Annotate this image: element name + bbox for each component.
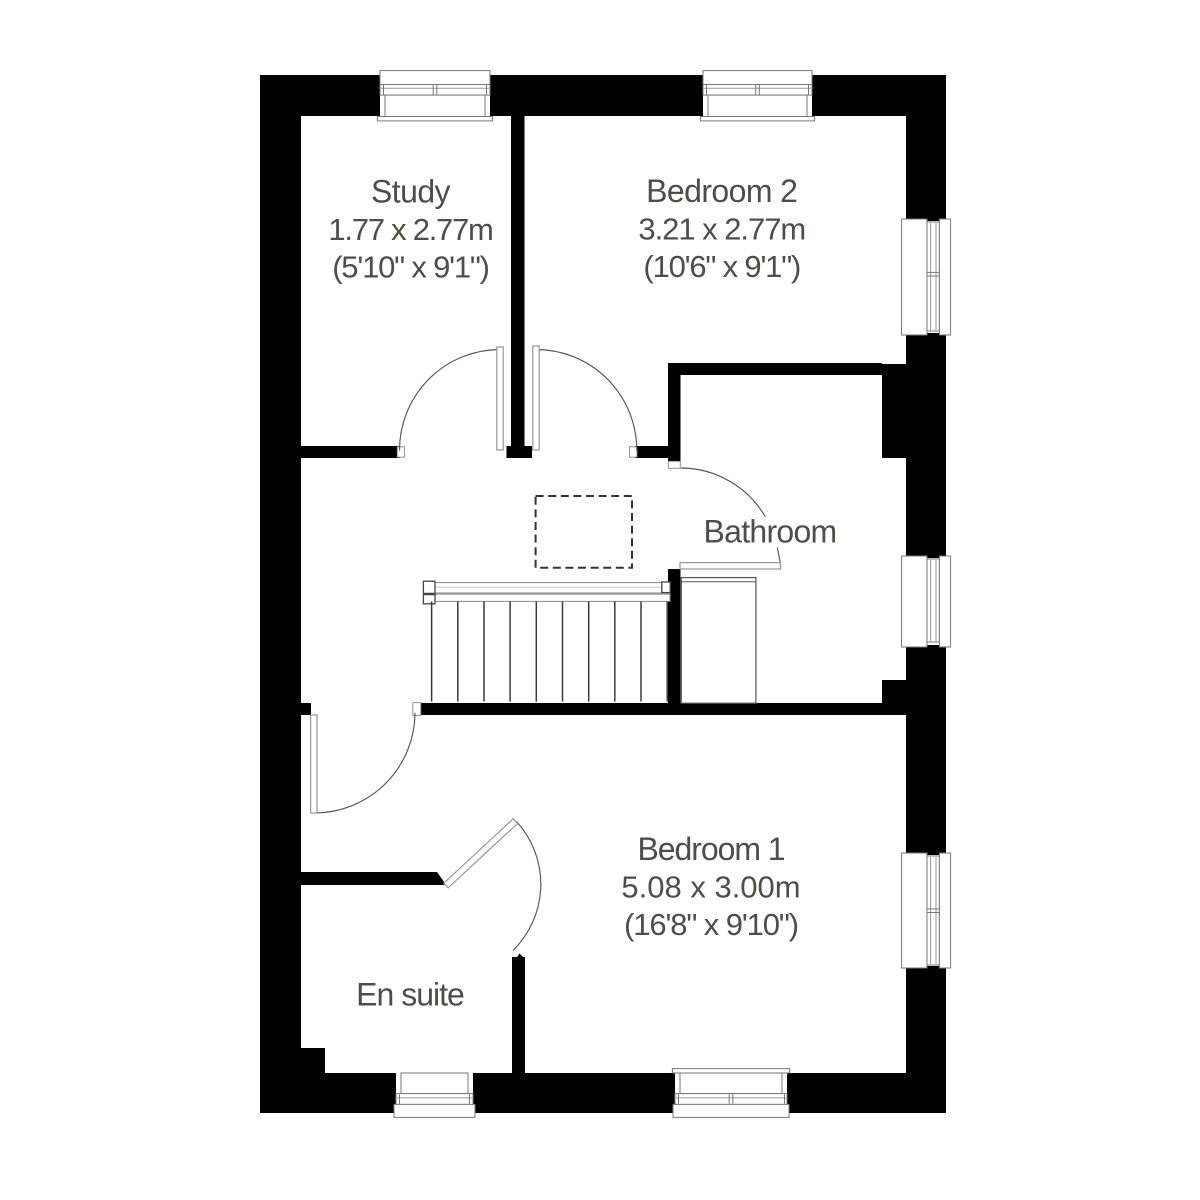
svg-text:En suite: En suite: [356, 976, 464, 1012]
svg-text:Bathroom: Bathroom: [704, 514, 837, 550]
svg-text:(5'10" x 9'1"): (5'10" x 9'1"): [332, 250, 489, 285]
svg-text:Bedroom 1: Bedroom 1: [638, 831, 785, 867]
svg-text:(16'8" x 9'10"): (16'8" x 9'10"): [624, 907, 798, 942]
svg-text:Bedroom 2: Bedroom 2: [646, 173, 797, 209]
svg-text:5.08 x 3.00m: 5.08 x 3.00m: [621, 870, 800, 905]
svg-text:Study: Study: [371, 174, 451, 210]
svg-text:3.21 x 2.77m: 3.21 x 2.77m: [638, 212, 805, 247]
svg-text:1.77 x 2.77m: 1.77 x 2.77m: [328, 212, 492, 247]
svg-text:(10'6" x 9'1"): (10'6" x 9'1"): [643, 249, 800, 284]
